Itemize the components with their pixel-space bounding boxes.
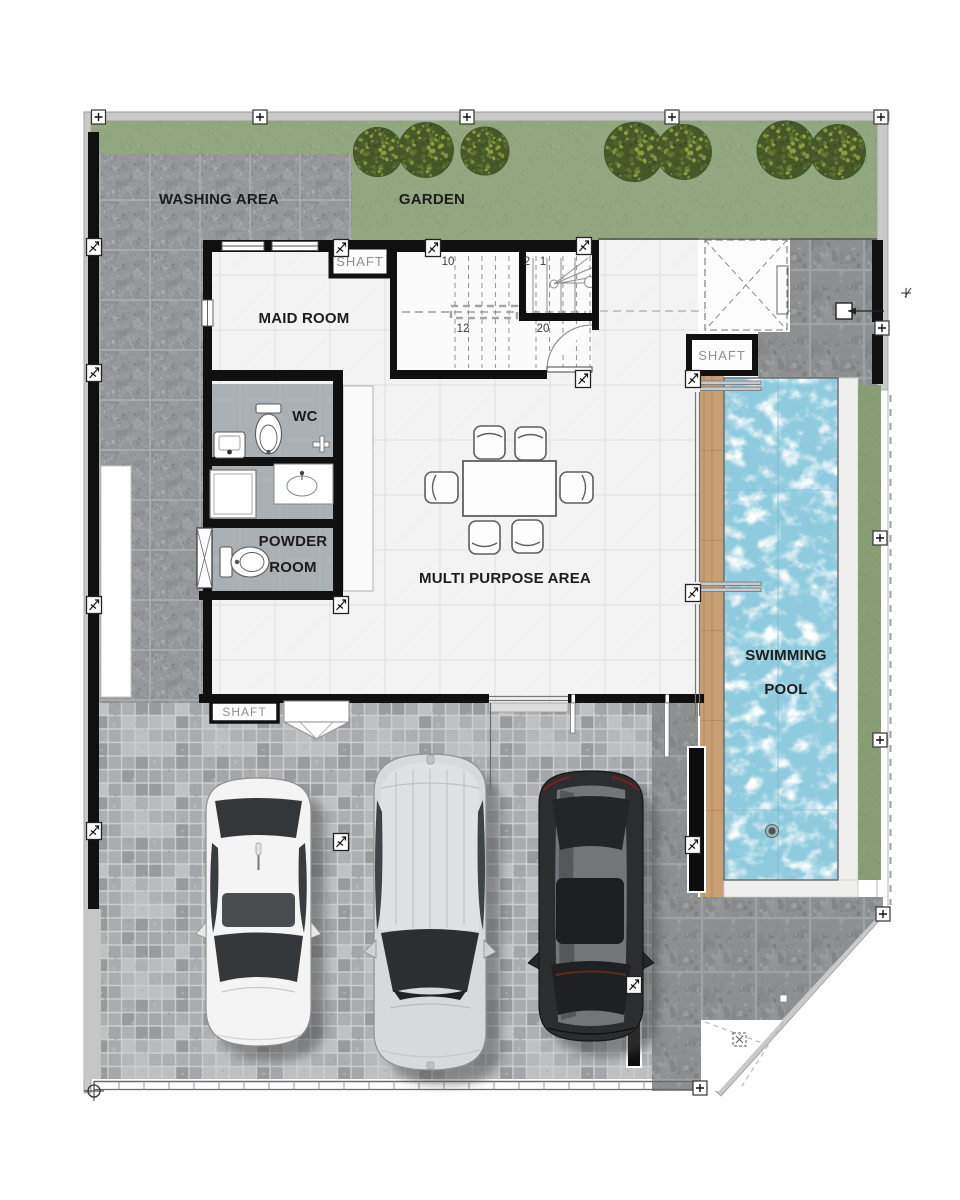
svg-text:GARDEN: GARDEN [399,191,465,208]
svg-text:2: 2 [524,256,530,268]
svg-text:SWIMMING: SWIMMING [745,647,827,664]
svg-text:SHAFT: SHAFT [222,705,266,719]
svg-text:MULTI PURPOSE AREA: MULTI PURPOSE AREA [419,570,591,587]
svg-text:SHAFT: SHAFT [336,254,384,269]
svg-text:WASHING AREA: WASHING AREA [159,191,279,208]
svg-text:12: 12 [457,323,470,335]
svg-text:WC: WC [292,408,317,425]
svg-text:POOL: POOL [764,681,807,698]
svg-text:1: 1 [540,256,546,268]
svg-text:ROOM: ROOM [269,559,316,576]
svg-text:20: 20 [537,323,550,335]
svg-text:POWDER: POWDER [259,533,328,550]
svg-text:SHAFT: SHAFT [698,348,746,363]
svg-text:MAID ROOM: MAID ROOM [259,310,350,327]
svg-text:10: 10 [442,256,455,268]
